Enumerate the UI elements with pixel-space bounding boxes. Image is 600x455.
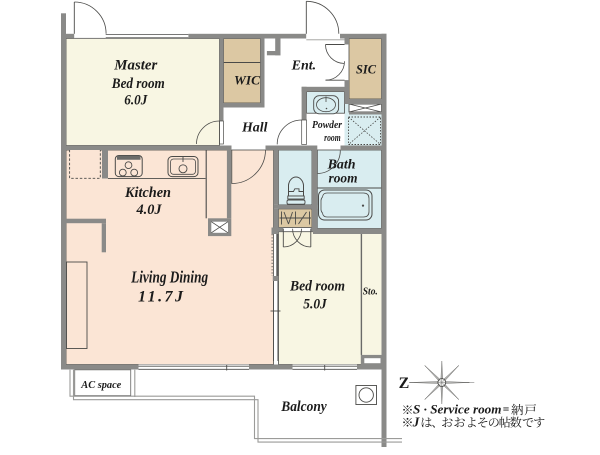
svg-text:=: = xyxy=(503,404,510,416)
svg-text:Ent.: Ent. xyxy=(291,59,316,74)
svg-text:room: room xyxy=(324,132,341,144)
svg-text:11.7J: 11.7J xyxy=(138,288,184,305)
svg-text:SIC: SIC xyxy=(356,62,376,77)
svg-text:Z: Z xyxy=(399,375,410,392)
svg-text:Kitchen: Kitchen xyxy=(124,185,171,201)
svg-text:Balcony: Balcony xyxy=(280,399,327,415)
svg-text:Sto.: Sto. xyxy=(363,287,378,298)
svg-text:room: room xyxy=(329,172,358,187)
svg-text:Hall: Hall xyxy=(241,121,268,136)
svg-text:AC space: AC space xyxy=(80,379,121,391)
svg-text:Bath: Bath xyxy=(327,157,356,172)
svg-text:Powder: Powder xyxy=(312,119,343,131)
svg-text:Living Dining: Living Dining xyxy=(130,267,208,286)
svg-text:Bed room: Bed room xyxy=(289,279,345,295)
svg-text:4.0J: 4.0J xyxy=(136,202,162,218)
svg-text:5.0J: 5.0J xyxy=(303,297,327,313)
svg-text:J: J xyxy=(412,414,421,429)
svg-text:WIC: WIC xyxy=(234,73,260,88)
svg-text:Master: Master xyxy=(113,58,157,74)
svg-text:6.0J: 6.0J xyxy=(124,93,147,109)
svg-text:S · Service room: S · Service room xyxy=(413,402,502,417)
svg-text:Bed room: Bed room xyxy=(111,76,165,92)
